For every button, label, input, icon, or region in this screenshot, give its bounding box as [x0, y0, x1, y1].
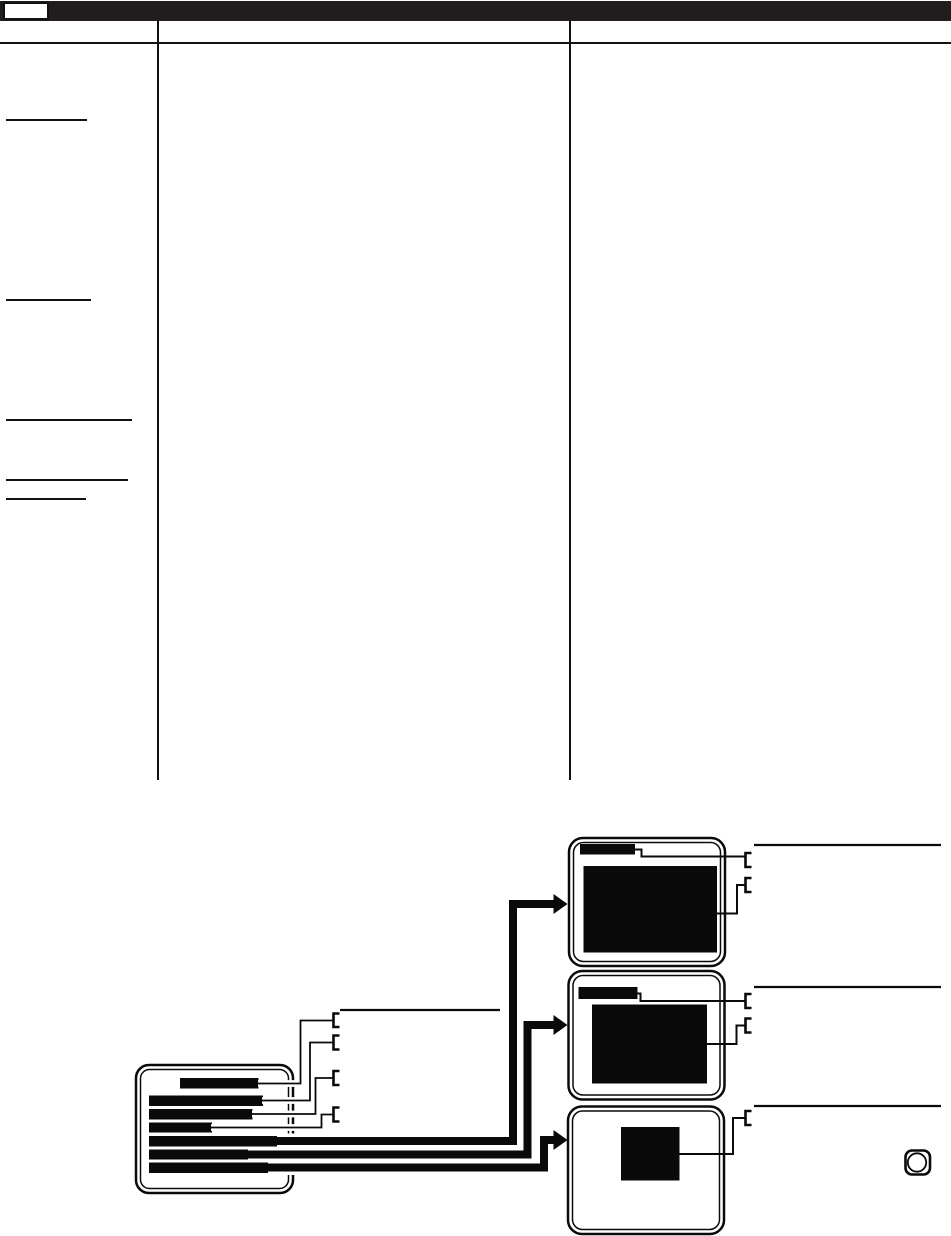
callout-line	[717, 885, 746, 914]
tv-screen-1	[569, 838, 941, 966]
enter-button-icon	[906, 1151, 931, 1175]
callout-bracket	[746, 1019, 752, 1033]
tv-screen-3	[568, 1106, 941, 1234]
menu-item-bar	[149, 1096, 263, 1107]
menu-item-bar	[149, 1123, 212, 1133]
redacted-screen-content	[621, 1127, 680, 1181]
connection-diagram	[0, 0, 951, 1236]
callout-line	[635, 850, 746, 857]
button-circle	[908, 1153, 926, 1171]
callout-line	[680, 1118, 746, 1154]
callout-line	[638, 994, 746, 1002]
callout-line	[707, 1026, 746, 1045]
menu-item-bar	[149, 1150, 250, 1160]
menu-item-bar	[149, 1109, 253, 1120]
flow-arrowhead	[554, 894, 568, 914]
manual-page	[0, 0, 951, 1236]
menu-item-bar	[149, 1163, 270, 1174]
redacted-title-bar	[579, 987, 638, 999]
menu-title-bar	[180, 1078, 259, 1089]
tv-screen-2	[569, 971, 942, 1100]
callout-line	[258, 1021, 333, 1084]
callout-bracket	[746, 853, 752, 867]
redacted-title-bar	[580, 844, 635, 855]
flow-arrowhead	[554, 1015, 568, 1035]
callout-bracket	[746, 994, 752, 1008]
redacted-screen-content	[584, 866, 718, 953]
callout-bracket	[334, 1071, 340, 1085]
callout-bracket	[746, 878, 752, 892]
callout-bracket	[746, 1111, 752, 1125]
redacted-screen-content	[592, 1005, 707, 1084]
callout-bracket	[334, 1014, 340, 1028]
menu-item-bar	[149, 1136, 278, 1147]
flow-arrowhead	[554, 1130, 568, 1150]
callout-bracket	[334, 1036, 340, 1050]
callout-bracket	[334, 1108, 340, 1122]
